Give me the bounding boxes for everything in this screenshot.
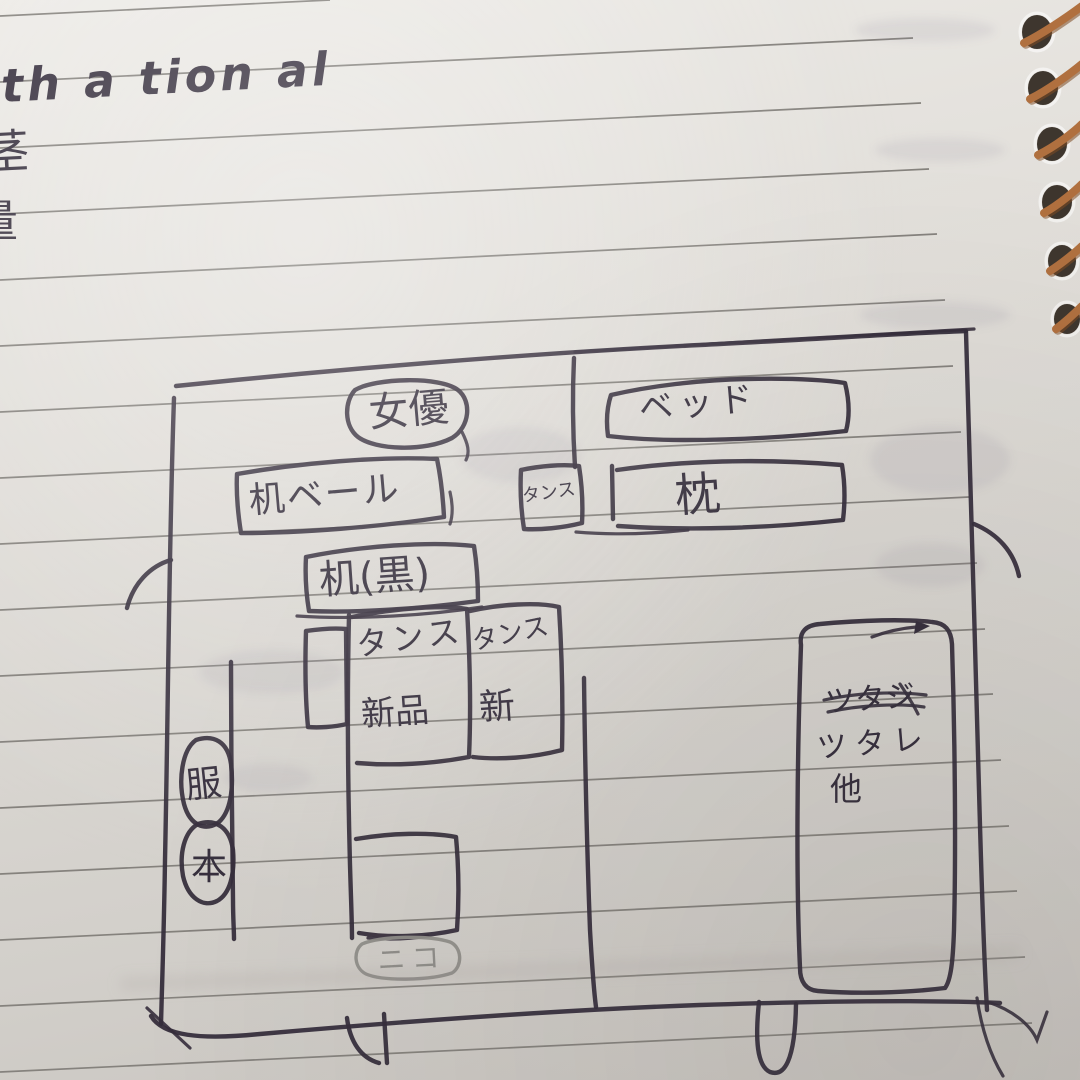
label-wall-circle-bottom: 本 (191, 847, 227, 888)
ghost-smudges (200, 18, 1010, 792)
spiral-ring (1046, 243, 1080, 279)
notebook-page: th a tion al 茎 量 女優 ベッド 枕 机ベール 机(黒) タンス … (0, 0, 1080, 1080)
pillow-box-underline (576, 530, 688, 534)
spiral-ring (1040, 183, 1080, 221)
door-arc-left (127, 560, 171, 608)
label-door-note: ニコ (377, 940, 447, 977)
paper-crease (120, 946, 1020, 991)
label-wall-circle-top: 服 (184, 762, 224, 807)
spiral-ring (1020, 6, 1080, 51)
label-closet-right-2: 新 (478, 686, 517, 729)
ruled-lines (0, 0, 1032, 1072)
handwriting-top: th a tion al (0, 42, 333, 113)
wall-corner-overshoot (147, 1008, 190, 1048)
wall-left (161, 398, 174, 1024)
door-stub-bottom-left (384, 1014, 387, 1063)
spiral-ring (1035, 124, 1080, 163)
pillow-box-left-stub (612, 466, 613, 519)
wall-top (176, 331, 966, 386)
label-pillow: 枕 (673, 466, 723, 523)
door-arc-bottom-right (757, 1002, 796, 1073)
shelf-box (797, 620, 955, 992)
notebook-scene: th a tion al 茎 量 女優 ベッド 枕 机ベール 机(黒) タンス … (0, 0, 1080, 1080)
spiral-binding (1020, 6, 1080, 336)
label-shelf-crossed: ツタジ (824, 679, 916, 720)
wall-bottom-right-hook (988, 1002, 1047, 1040)
label-desk-black: 机(黒) (317, 550, 431, 604)
spiral-ring (1052, 302, 1080, 336)
partition-lower (584, 678, 596, 1007)
handwriting-fragment-2: 茎 (0, 123, 31, 179)
wall-bottom-right-tail (977, 998, 1003, 1076)
label-shelf-3: 他 (830, 770, 862, 808)
label-closet-small: タンス (521, 479, 577, 507)
desk-beige-tick (450, 492, 452, 524)
handwriting-fragment-3: 量 (0, 196, 18, 247)
label-desk-beige: 机ベール (247, 468, 402, 522)
partition-upper (573, 358, 575, 467)
spiral-ring (1026, 64, 1080, 107)
label-closet-left-2: 新品 (360, 690, 431, 735)
label-shelf-2: ツタレ (816, 721, 933, 766)
pillow-box-top (617, 461, 844, 528)
label-closet-left-1: タンス (354, 611, 466, 664)
wall-top-double-stroke (575, 329, 974, 352)
label-oval-top: 女優 (367, 384, 451, 437)
